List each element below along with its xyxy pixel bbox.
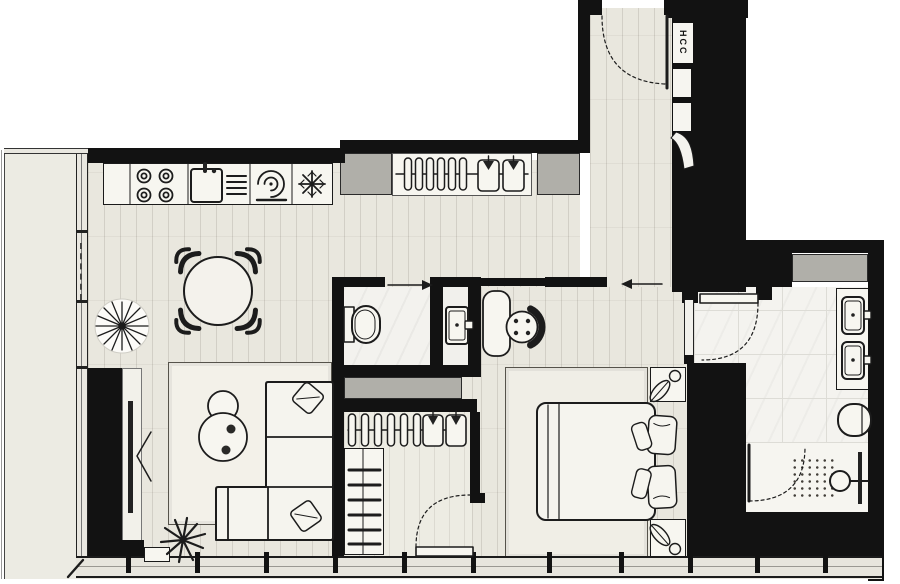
hanger-icon [416,158,423,190]
cooktop-icon [138,170,173,202]
pillow [647,465,677,508]
shirt-icon [478,156,499,191]
floor-plan: HCC [0,0,900,584]
entry-arrow-left [621,279,662,289]
hanger-icon [414,414,421,446]
entrance-door [602,16,667,88]
shelf-rails [349,470,380,544]
wc-basin [446,307,473,344]
hanger-icon [349,414,356,446]
hanger-icon [375,414,382,446]
corner-tick [68,560,83,577]
living-plant [161,518,205,562]
shaft-pipe [671,132,694,169]
cup [227,425,236,434]
shirt-icon [446,411,466,446]
entry-closet [396,156,528,191]
wc-arrow-right [388,280,433,290]
dish-rack-icon [227,176,246,194]
double-bed [537,403,677,520]
dining-plant [95,299,149,353]
shower-head [830,452,868,504]
extractor-swirl-icon [257,171,286,200]
refrigerator-snowflake-icon [299,171,325,197]
dining-table [170,243,266,339]
shower-door [749,445,805,501]
hanger-icon [362,414,369,446]
tv [128,401,151,513]
hanger-icon [449,158,456,190]
nightstand-plant-bottom [647,521,681,554]
bathroom-toilet [838,404,871,436]
hanger-icon [460,158,467,190]
hanger-icon [438,158,445,190]
hanger-icon [427,158,434,190]
nightstand-plant-top [647,371,681,405]
hanger-icon [401,414,408,446]
wc-toilet [344,306,380,343]
vanity-sink-bottom [842,342,871,379]
kitchen-sink-icon [191,162,222,202]
vanity-sink-top [842,297,871,334]
shirt-icon [503,156,524,191]
shirt-icon [423,411,443,446]
cup [222,446,231,455]
bathroom-door [700,294,758,360]
hanger-icon [405,158,412,190]
closet-door [416,495,473,556]
coffee-tables [199,391,247,461]
hanger-icon [388,414,395,446]
furniture-layer [0,0,900,584]
stool [507,309,542,345]
walkin-closet [348,411,473,556]
pillow [647,415,678,455]
